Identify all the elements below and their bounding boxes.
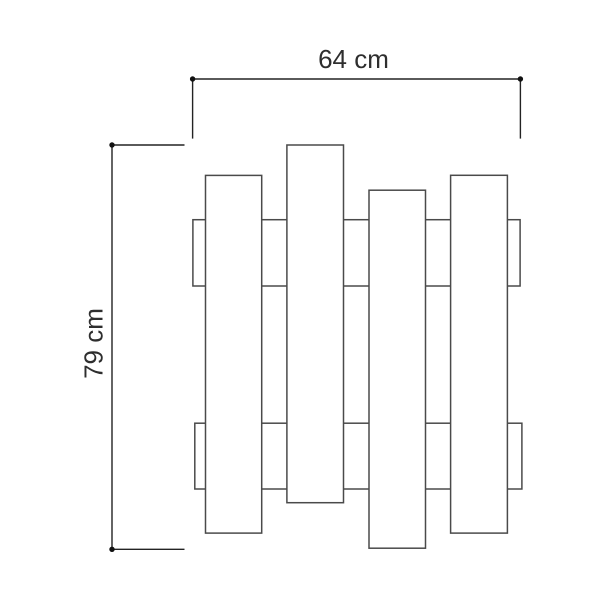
svg-text:64 cm: 64 cm — [318, 44, 389, 74]
svg-text:79 cm: 79 cm — [79, 308, 109, 379]
